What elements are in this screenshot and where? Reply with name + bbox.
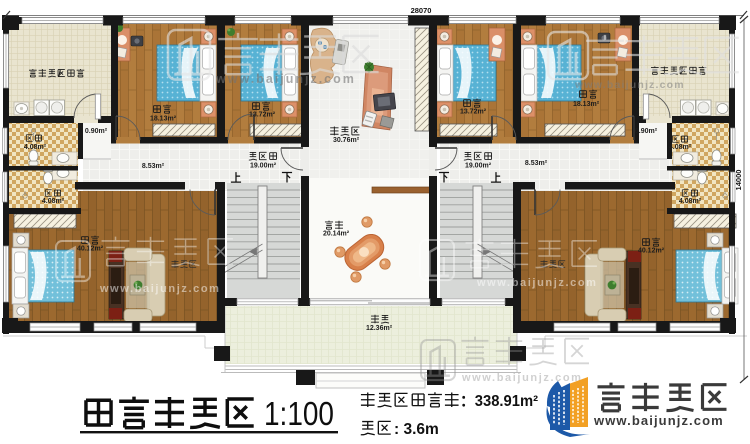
- svg-text:www.baijunjz.com: www.baijunjz.com: [476, 277, 598, 289]
- svg-text:www.baijunjz.com: www.baijunjz.com: [574, 79, 685, 91]
- svg-text:4.08m²: 4.08m²: [24, 144, 47, 151]
- svg-text:www.baijunjz.com: www.baijunjz.com: [593, 413, 724, 428]
- svg-text:18.13m²: 18.13m²: [150, 116, 177, 123]
- svg-text:14000: 14000: [734, 170, 743, 191]
- svg-text:19.00m²: 19.00m²: [465, 163, 492, 170]
- svg-text:www.baijunjz.com: www.baijunjz.com: [461, 372, 583, 384]
- svg-text:13.72m²: 13.72m²: [249, 112, 276, 119]
- svg-text:: 3.6m: : 3.6m: [394, 421, 439, 438]
- svg-text:28070: 28070: [411, 6, 432, 15]
- svg-text:30.76m²: 30.76m²: [333, 137, 360, 144]
- svg-text:40.12m²: 40.12m²: [638, 248, 665, 255]
- svg-text:0.90m²: 0.90m²: [85, 128, 108, 135]
- svg-text:8.53m²: 8.53m²: [525, 160, 548, 167]
- svg-text:19.00m²: 19.00m²: [250, 163, 277, 170]
- svg-text:：338.91m²: ：338.91m²: [460, 393, 538, 410]
- svg-text:www.baijunjz.com: www.baijunjz.com: [215, 72, 356, 86]
- svg-text:18.13m²: 18.13m²: [573, 101, 600, 108]
- svg-text:12.36m²: 12.36m²: [366, 325, 393, 332]
- svg-text:0.90m²: 0.90m²: [635, 128, 658, 135]
- svg-text:4.08m²: 4.08m²: [679, 198, 702, 205]
- svg-text:13.72m²: 13.72m²: [460, 109, 487, 116]
- svg-text:20.14m²: 20.14m²: [323, 231, 350, 238]
- svg-text:8.53m²: 8.53m²: [142, 163, 165, 170]
- svg-text:www.baijunjz.com: www.baijunjz.com: [99, 283, 221, 295]
- svg-text:4.08m²: 4.08m²: [669, 144, 692, 151]
- svg-text:4.08m²: 4.08m²: [42, 198, 65, 205]
- svg-text:1:100: 1:100: [264, 395, 334, 432]
